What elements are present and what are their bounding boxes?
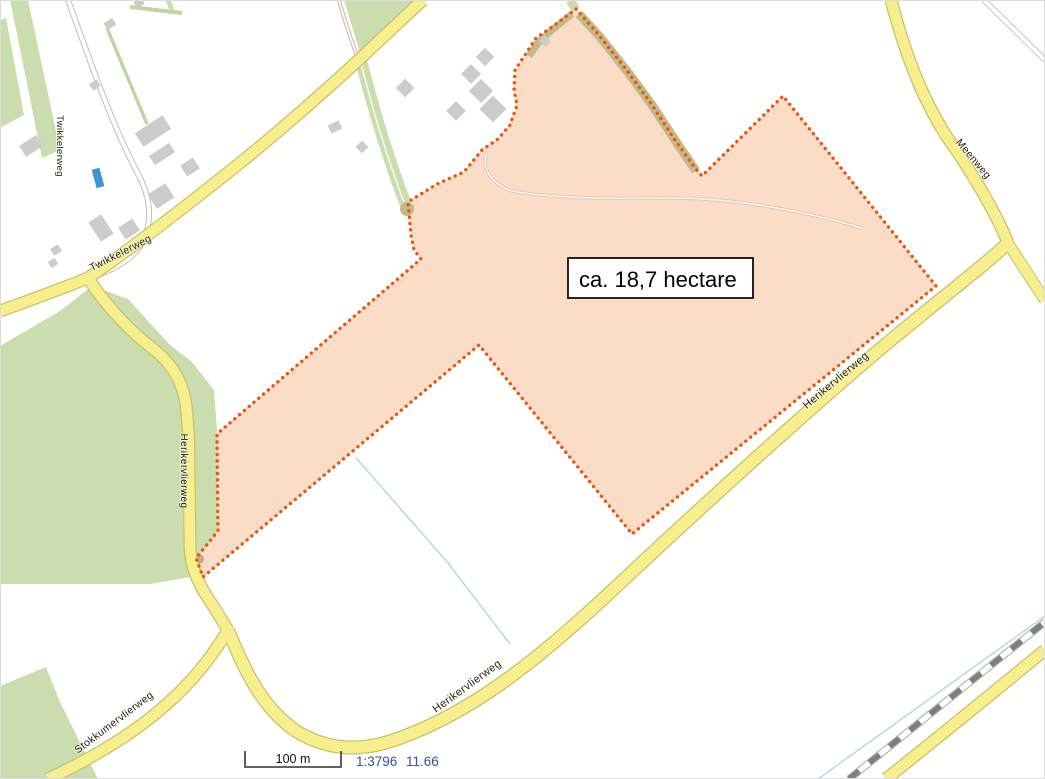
- map-viewport[interactable]: Twikkelerweg Twikkelerweg Herikervlierwe…: [0, 0, 1045, 779]
- scale-ratio-value: 1:3796: [356, 754, 397, 769]
- road-label-herikervlierweg-north: Herikervlierweg: [178, 434, 189, 509]
- area-label-text: ca. 18,7 hectare: [579, 267, 737, 292]
- area-label-box[interactable]: ca. 18,7 hectare: [568, 258, 753, 298]
- map-canvas: Twikkelerweg Twikkelerweg Herikervlierwe…: [0, 0, 1045, 779]
- road-label-twikkelerweg-vertical: Twikkelerweg: [54, 115, 65, 177]
- scale-bar-label: 100 m: [276, 752, 311, 766]
- zoom-level-value: 11.66: [406, 754, 439, 769]
